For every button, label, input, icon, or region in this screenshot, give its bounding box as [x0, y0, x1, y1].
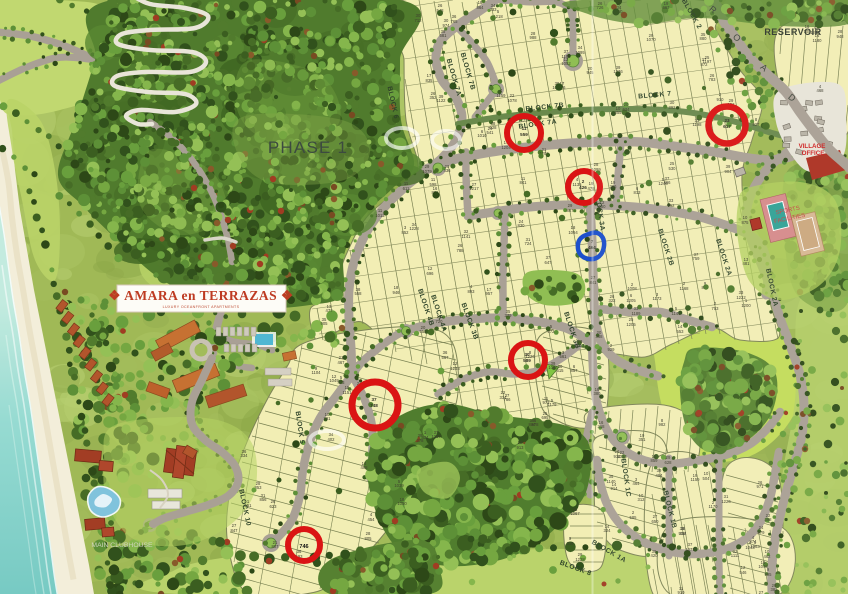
svg-text:864: 864 [477, 5, 485, 10]
svg-text:856: 856 [260, 497, 268, 502]
svg-text:1012: 1012 [375, 213, 385, 218]
svg-text:561: 561 [560, 354, 568, 359]
svg-text:615: 615 [557, 368, 565, 373]
svg-text:1195: 1195 [561, 54, 571, 59]
svg-text:1104: 1104 [311, 370, 321, 375]
svg-text:681: 681 [440, 33, 448, 38]
svg-text:841: 841 [520, 180, 528, 185]
svg-text:807: 807 [272, 544, 280, 549]
svg-text:589: 589 [523, 358, 531, 363]
svg-text:MAIN CLUBHOUSE: MAIN CLUBHOUSE [91, 542, 153, 549]
svg-text:572: 572 [548, 329, 556, 334]
svg-text:11: 11 [522, 126, 527, 131]
svg-text:559: 559 [520, 132, 528, 137]
svg-text:1122: 1122 [436, 98, 446, 103]
svg-text:647: 647 [545, 260, 553, 265]
svg-text:467: 467 [338, 360, 346, 365]
svg-text:1159: 1159 [496, 93, 506, 98]
svg-text:712: 712 [415, 18, 423, 23]
svg-text:1079: 1079 [422, 169, 432, 174]
svg-text:498: 498 [361, 465, 369, 470]
svg-text:❖ AMARA en TERRAZAS ❖: ❖ AMARA en TERRAZAS ❖ [108, 288, 293, 303]
svg-text:913: 913 [517, 445, 525, 450]
svg-text:988: 988 [530, 35, 538, 40]
svg-text:436: 436 [444, 168, 452, 173]
svg-text:974: 974 [443, 23, 451, 28]
svg-text:1078: 1078 [507, 98, 517, 103]
svg-text:946: 946 [393, 290, 401, 295]
svg-text:316: 316 [567, 541, 575, 546]
svg-text:30: 30 [524, 352, 530, 357]
svg-text:805: 805 [365, 536, 373, 541]
svg-text:1094: 1094 [568, 230, 578, 235]
svg-text:1095: 1095 [575, 50, 585, 55]
svg-text:1228: 1228 [409, 226, 419, 231]
svg-text:1049: 1049 [329, 378, 339, 383]
svg-text:454: 454 [368, 517, 376, 522]
svg-text:611: 611 [403, 186, 410, 191]
svg-text:541: 541 [487, 130, 495, 135]
svg-text:695: 695 [542, 415, 550, 420]
svg-text:807: 807 [567, 208, 575, 213]
svg-text:378: 378 [417, 438, 425, 443]
svg-text:1233: 1233 [450, 366, 460, 371]
svg-text:1217: 1217 [469, 186, 479, 191]
svg-text:696: 696 [427, 271, 435, 276]
svg-text:835: 835 [426, 78, 434, 83]
svg-text:973: 973 [543, 400, 551, 405]
svg-text:334: 334 [241, 453, 249, 458]
svg-text:746: 746 [299, 544, 308, 550]
svg-text:724: 724 [525, 241, 533, 246]
svg-text:894: 894 [529, 422, 537, 427]
svg-text:477: 477 [326, 308, 334, 313]
svg-text:1050: 1050 [397, 501, 407, 506]
svg-text:786: 786 [504, 397, 512, 402]
svg-text:567: 567 [442, 355, 450, 360]
svg-text:1141: 1141 [461, 234, 471, 239]
svg-text:598: 598 [430, 182, 438, 187]
svg-text:1228: 1228 [575, 557, 585, 562]
svg-text:623: 623 [270, 504, 278, 509]
svg-text:558: 558 [355, 291, 363, 296]
svg-text:830: 830 [518, 223, 526, 228]
svg-text:426: 426 [579, 185, 587, 190]
svg-text:37: 37 [371, 397, 377, 402]
svg-text:553: 553 [420, 329, 428, 334]
svg-text:788: 788 [457, 248, 465, 253]
svg-text:1052: 1052 [561, 61, 571, 66]
svg-text:PHASE 1: PHASE 1 [268, 138, 348, 157]
svg-text:1237: 1237 [431, 434, 441, 439]
svg-text:LUXURY OCEANFRONT APARTMENTS: LUXURY OCEANFRONT APARTMENTS [163, 305, 240, 309]
svg-text:748: 748 [370, 403, 378, 408]
svg-text:1067: 1067 [570, 511, 580, 516]
svg-text:765: 765 [451, 19, 459, 24]
svg-text:1039: 1039 [394, 483, 404, 488]
svg-text:2: 2 [582, 179, 585, 184]
svg-text:402: 402 [328, 437, 336, 442]
svg-text:857: 857 [571, 368, 579, 373]
svg-text:905: 905 [321, 321, 329, 326]
svg-text:852: 852 [402, 230, 410, 235]
svg-text:893: 893 [468, 289, 476, 294]
svg-text:1151: 1151 [342, 390, 352, 395]
svg-text:847: 847 [231, 528, 239, 533]
svg-text:791: 791 [324, 416, 332, 421]
svg-text:379: 379 [505, 313, 513, 318]
svg-text:957: 957 [486, 291, 494, 296]
